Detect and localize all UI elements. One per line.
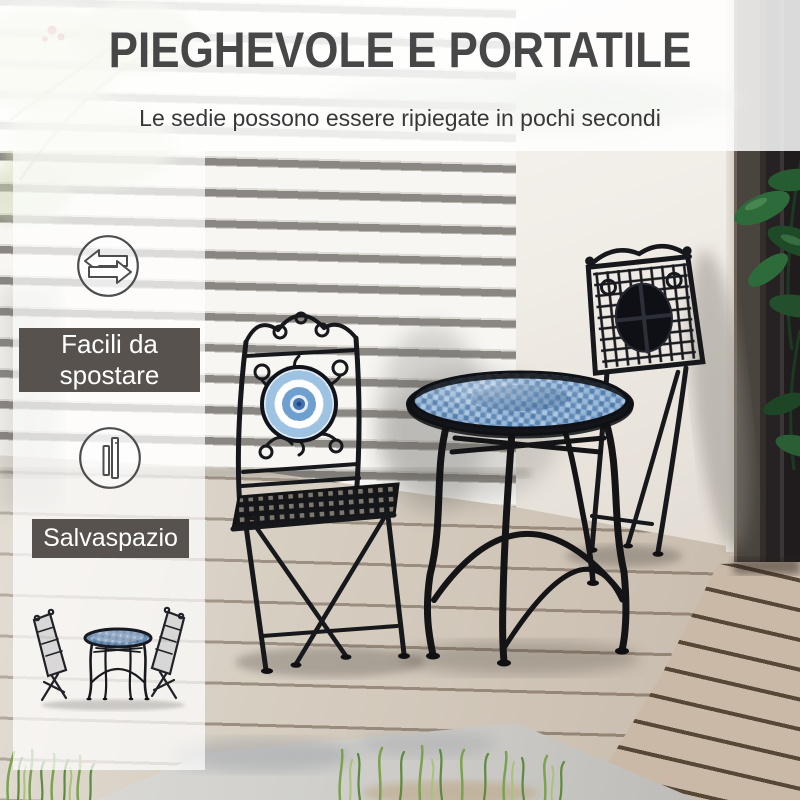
page-subtitle: Le sedie possono essere ripiegate in poc… xyxy=(0,105,800,132)
mosaic-table-top xyxy=(406,372,634,436)
inset-table xyxy=(85,629,151,700)
folded-chairs-icon xyxy=(79,427,141,489)
mosaic-bistro-table xyxy=(406,372,634,667)
mosaic-medallion xyxy=(260,365,338,443)
move-arrows-icon xyxy=(77,235,139,297)
feature-label-easy-to-move: Facili da spostare xyxy=(19,328,200,392)
folding-chair xyxy=(233,313,410,674)
inset-folded-chair-right xyxy=(152,608,184,698)
folded-set-inset xyxy=(18,598,202,716)
product-infographic: PIEGHEVOLE E PORTATILE Le sedie possono … xyxy=(0,0,800,800)
page-title: PIEGHEVOLE E PORTATILE xyxy=(48,21,752,79)
feature-label-space-saving: Salvaspazio xyxy=(32,519,189,558)
inset-folded-chair-left xyxy=(34,610,66,700)
